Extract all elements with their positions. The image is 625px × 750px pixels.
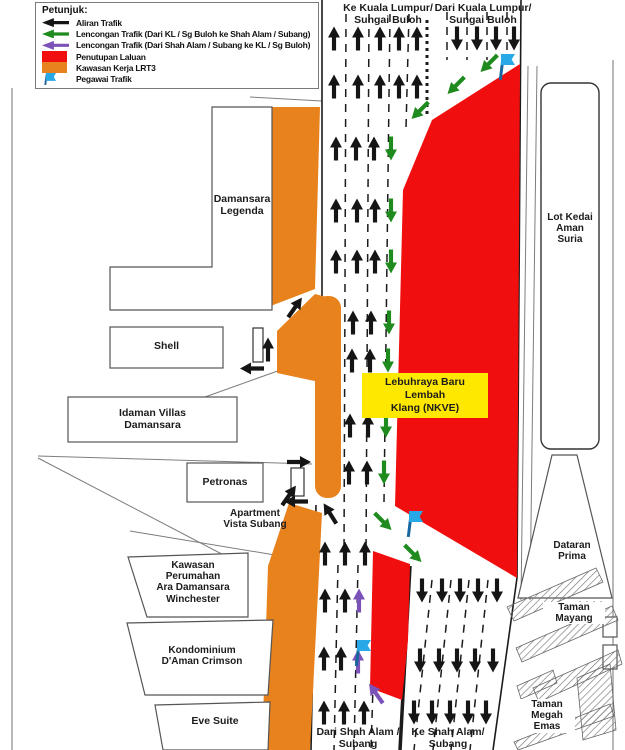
diversion-arrow-to-kl xyxy=(353,588,366,612)
traffic-flow-arrow xyxy=(364,348,377,372)
traffic-flow-arrow xyxy=(338,700,351,724)
blue-flag-icon xyxy=(42,73,70,86)
traffic-flow-arrow xyxy=(344,413,357,437)
traffic-flow-arrow xyxy=(330,198,343,222)
diversion-arrow-from-kl xyxy=(385,136,398,160)
label-dataran-prima: Dataran Prima xyxy=(541,540,603,562)
diversion-arrow-from-kl xyxy=(385,249,398,273)
traffic-flow-arrow xyxy=(472,578,485,602)
traffic-flow-arrow xyxy=(451,26,464,50)
label-lot-kedai: Lot Kedai Aman Suria xyxy=(542,212,598,246)
traffic-flow-arrow xyxy=(444,700,457,724)
traffic-flow-arrow xyxy=(487,648,500,672)
traffic-flow-arrow xyxy=(319,541,332,565)
label-idaman-villas: Idaman Villas Damansara xyxy=(68,408,237,432)
traffic-flow-arrow xyxy=(287,456,311,469)
traffic-flow-arrow xyxy=(393,26,406,50)
label-nkve-highway: Lebuhraya Baru Lembah Klang (NKVE) xyxy=(362,373,488,418)
traffic-flow-arrow xyxy=(469,648,482,672)
legend-item: Lencongan Trafik (Dari Shah Alam / Suban… xyxy=(42,40,315,51)
label-damansara-legenda: Damansara Legenda xyxy=(211,194,273,218)
traffic-flow-arrow xyxy=(426,700,439,724)
traffic-officer-flag-icon xyxy=(352,640,372,668)
traffic-flow-arrow xyxy=(411,74,424,98)
legend-item: Pegawai Trafik xyxy=(42,74,315,85)
green-arrow-icon xyxy=(42,29,70,38)
traffic-flow-arrow xyxy=(352,26,365,50)
traffic-flow-arrow xyxy=(240,362,264,375)
orange-swatch-icon xyxy=(42,62,70,73)
label-from-kuala-lumpur: Dari Kuala Lumpur/ Sungai Buloh xyxy=(430,3,536,27)
traffic-flow-arrow xyxy=(369,198,382,222)
traffic-flow-arrow xyxy=(433,648,446,672)
traffic-flow-arrow xyxy=(343,460,356,484)
traffic-flow-arrow xyxy=(318,646,331,670)
traffic-flow-arrow xyxy=(277,481,301,508)
traffic-flow-arrow xyxy=(454,578,467,602)
traffic-flow-arrow xyxy=(393,74,406,98)
traffic-flow-arrow xyxy=(351,249,364,273)
traffic-flow-arrow xyxy=(408,700,421,724)
traffic-flow-arrow xyxy=(374,74,387,98)
traffic-flow-arrow xyxy=(330,136,343,160)
traffic-flow-arrow xyxy=(411,26,424,50)
traffic-flow-arrow xyxy=(361,460,374,484)
label-to-kuala-lumpur: Ke Kuala Lumpur/ Sungai Buloh xyxy=(340,3,436,27)
traffic-flow-arrow xyxy=(328,26,341,50)
traffic-flow-arrow xyxy=(318,499,342,526)
traffic-flow-arrow xyxy=(283,293,307,320)
red-swatch-icon xyxy=(42,51,70,62)
traffic-flow-arrow xyxy=(365,310,378,334)
traffic-flow-arrow xyxy=(436,578,449,602)
traffic-flow-arrow xyxy=(347,310,360,334)
traffic-diversion-map: Petunjuk: Aliran Trafik Lencongan Trafik… xyxy=(0,0,625,750)
traffic-flow-arrow xyxy=(358,700,371,724)
traffic-flow-arrow xyxy=(330,249,343,273)
diversion-arrow-from-kl xyxy=(382,348,395,372)
traffic-flow-arrow xyxy=(335,646,348,670)
legend-item: Lencongan Trafik (Dari KL / Sg Buloh ke … xyxy=(42,28,315,39)
traffic-flow-arrow xyxy=(471,26,484,50)
traffic-flow-arrow xyxy=(491,578,504,602)
label-taman-megah: Taman Megah Emas xyxy=(519,699,575,733)
traffic-flow-arrow xyxy=(490,26,503,50)
traffic-flow-arrow xyxy=(351,198,364,222)
traffic-flow-arrow xyxy=(350,136,363,160)
traffic-flow-arrow xyxy=(374,26,387,50)
legend: Petunjuk: Aliran Trafik Lencongan Trafik… xyxy=(35,2,319,89)
diversion-arrow-from-kl xyxy=(443,72,469,98)
traffic-flow-arrow xyxy=(339,588,352,612)
traffic-flow-arrow xyxy=(318,700,331,724)
label-to-shah-alam: Ke Shah Alam/ Subang xyxy=(402,727,494,750)
traffic-flow-arrow xyxy=(368,136,381,160)
traffic-flow-arrow xyxy=(319,588,332,612)
diversion-arrow-from-kl xyxy=(400,540,426,566)
label-vista-subang: Apartment Vista Subang xyxy=(218,508,292,530)
traffic-flow-arrow xyxy=(339,541,352,565)
diversion-arrow-from-kl xyxy=(378,460,391,484)
label-crimson: Kondominium D'Aman Crimson xyxy=(132,645,272,667)
label-petronas: Petronas xyxy=(187,477,263,489)
diversion-arrow-from-kl xyxy=(383,310,396,334)
traffic-flow-arrow xyxy=(416,578,429,602)
traffic-flow-arrow xyxy=(480,700,493,724)
traffic-flow-arrow xyxy=(346,348,359,372)
traffic-flow-arrow xyxy=(369,249,382,273)
diversion-arrow-to-kl xyxy=(364,679,388,706)
legend-title: Petunjuk: xyxy=(42,5,315,16)
traffic-flow-arrow xyxy=(359,541,372,565)
traffic-flow-arrow xyxy=(508,26,521,50)
traffic-flow-arrow xyxy=(451,648,464,672)
traffic-officer-flag-icon xyxy=(404,511,424,539)
label-from-shah-alam: Dari Shah Alam / Subang xyxy=(310,727,406,750)
traffic-flow-arrow xyxy=(462,700,475,724)
diversion-arrow-from-kl xyxy=(385,198,398,222)
label-winchester: Kawasan Perumahan Ara Damansara Winchest… xyxy=(133,560,253,605)
label-taman-mayang: Taman Mayang xyxy=(543,602,605,624)
traffic-flow-arrow xyxy=(414,648,427,672)
diversion-arrow-from-kl xyxy=(370,508,396,534)
traffic-flow-layer xyxy=(0,0,625,750)
purple-arrow-icon xyxy=(42,41,70,50)
traffic-flow-arrow xyxy=(262,337,275,361)
traffic-flow-arrow xyxy=(352,74,365,98)
label-eve-suite: Eve Suite xyxy=(165,716,265,728)
legend-item: Aliran Trafik xyxy=(42,17,315,28)
black-arrow-icon xyxy=(42,18,70,27)
traffic-flow-arrow xyxy=(328,74,341,98)
traffic-officer-flag-icon xyxy=(496,54,516,82)
legend-item: Kawasan Kerja LRT3 xyxy=(42,62,315,73)
label-shell: Shell xyxy=(110,341,223,353)
diversion-arrow-from-kl xyxy=(407,97,433,123)
legend-item: Penutupan Laluan xyxy=(42,51,315,62)
